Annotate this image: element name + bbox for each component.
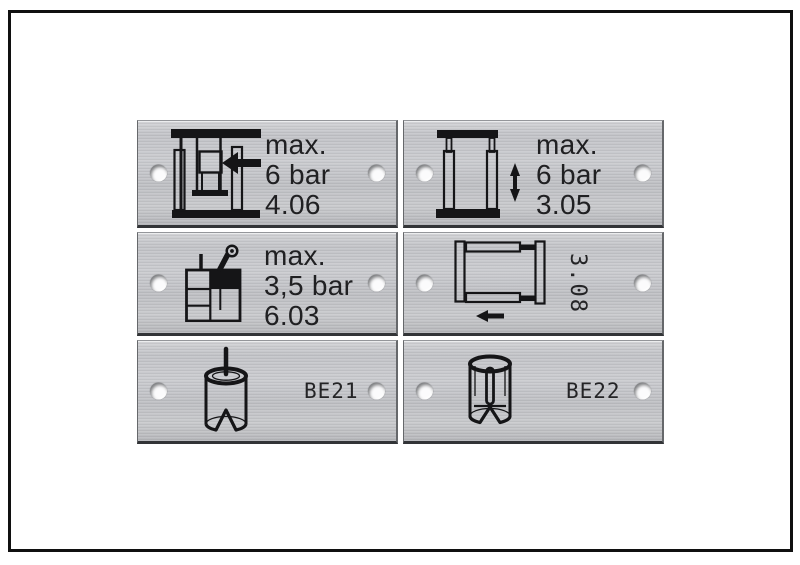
mounting-hole-left [150,275,167,292]
spec-line-code: 6.03 [264,301,353,331]
part-code: BE21 [304,379,359,403]
horizontal-slide-icon [454,240,546,324]
vertical-slide-icon [436,129,522,221]
mounting-hole-left [416,275,433,292]
mounting-hole-right [368,383,385,400]
spec-line-max: max. [264,241,353,271]
plate-lift-3-05: max. 6 bar 3.05 [403,120,664,228]
spec-line-code: 3.05 [536,190,601,220]
mounting-hole-right [368,165,385,182]
plate-be22: BE22 [403,340,664,444]
part-code: BE22 [566,379,621,403]
mounting-hole-left [150,165,167,182]
spec-line-max: max. [265,130,330,160]
mounting-hole-right [634,165,651,182]
press-unit-icon [171,129,261,219]
mounting-hole-left [416,165,433,182]
plate-be21: BE21 [137,340,398,444]
mounting-hole-left [416,383,433,400]
mounting-hole-left [150,383,167,400]
spec-line-pressure: 6 bar [536,160,601,190]
label-plates-grid: max. 6 bar 4.06 [137,120,664,444]
pressure-spec: max. 6 bar 4.06 [265,130,330,220]
spec-line-max: max. [536,130,601,160]
pressure-spec: max. 6 bar 3.05 [536,130,601,220]
bushing-pin-icon [202,346,250,438]
pressure-spec: max. 3,5 bar 6.03 [264,241,353,331]
plate-press-4-06: max. 6 bar 4.06 [137,120,398,228]
spec-line-pressure: 6 bar [265,160,330,190]
plate-tank-6-03: max. 3,5 bar 6.03 [137,232,398,336]
product-photo: max. 6 bar 4.06 [0,0,800,565]
mounting-hole-right [368,275,385,292]
rotated-code: 3.08 [554,233,600,333]
spec-line-pressure: 3,5 bar [264,271,353,301]
bushing-cutaway-icon [466,354,514,436]
plate-slide-3-08: 3.08 [403,232,664,336]
tank-gauge-icon [184,244,242,322]
mounting-hole-right [634,275,651,292]
rotated-code-text: 3.08 [565,253,590,314]
mounting-hole-right [634,383,651,400]
spec-line-code: 4.06 [265,190,330,220]
